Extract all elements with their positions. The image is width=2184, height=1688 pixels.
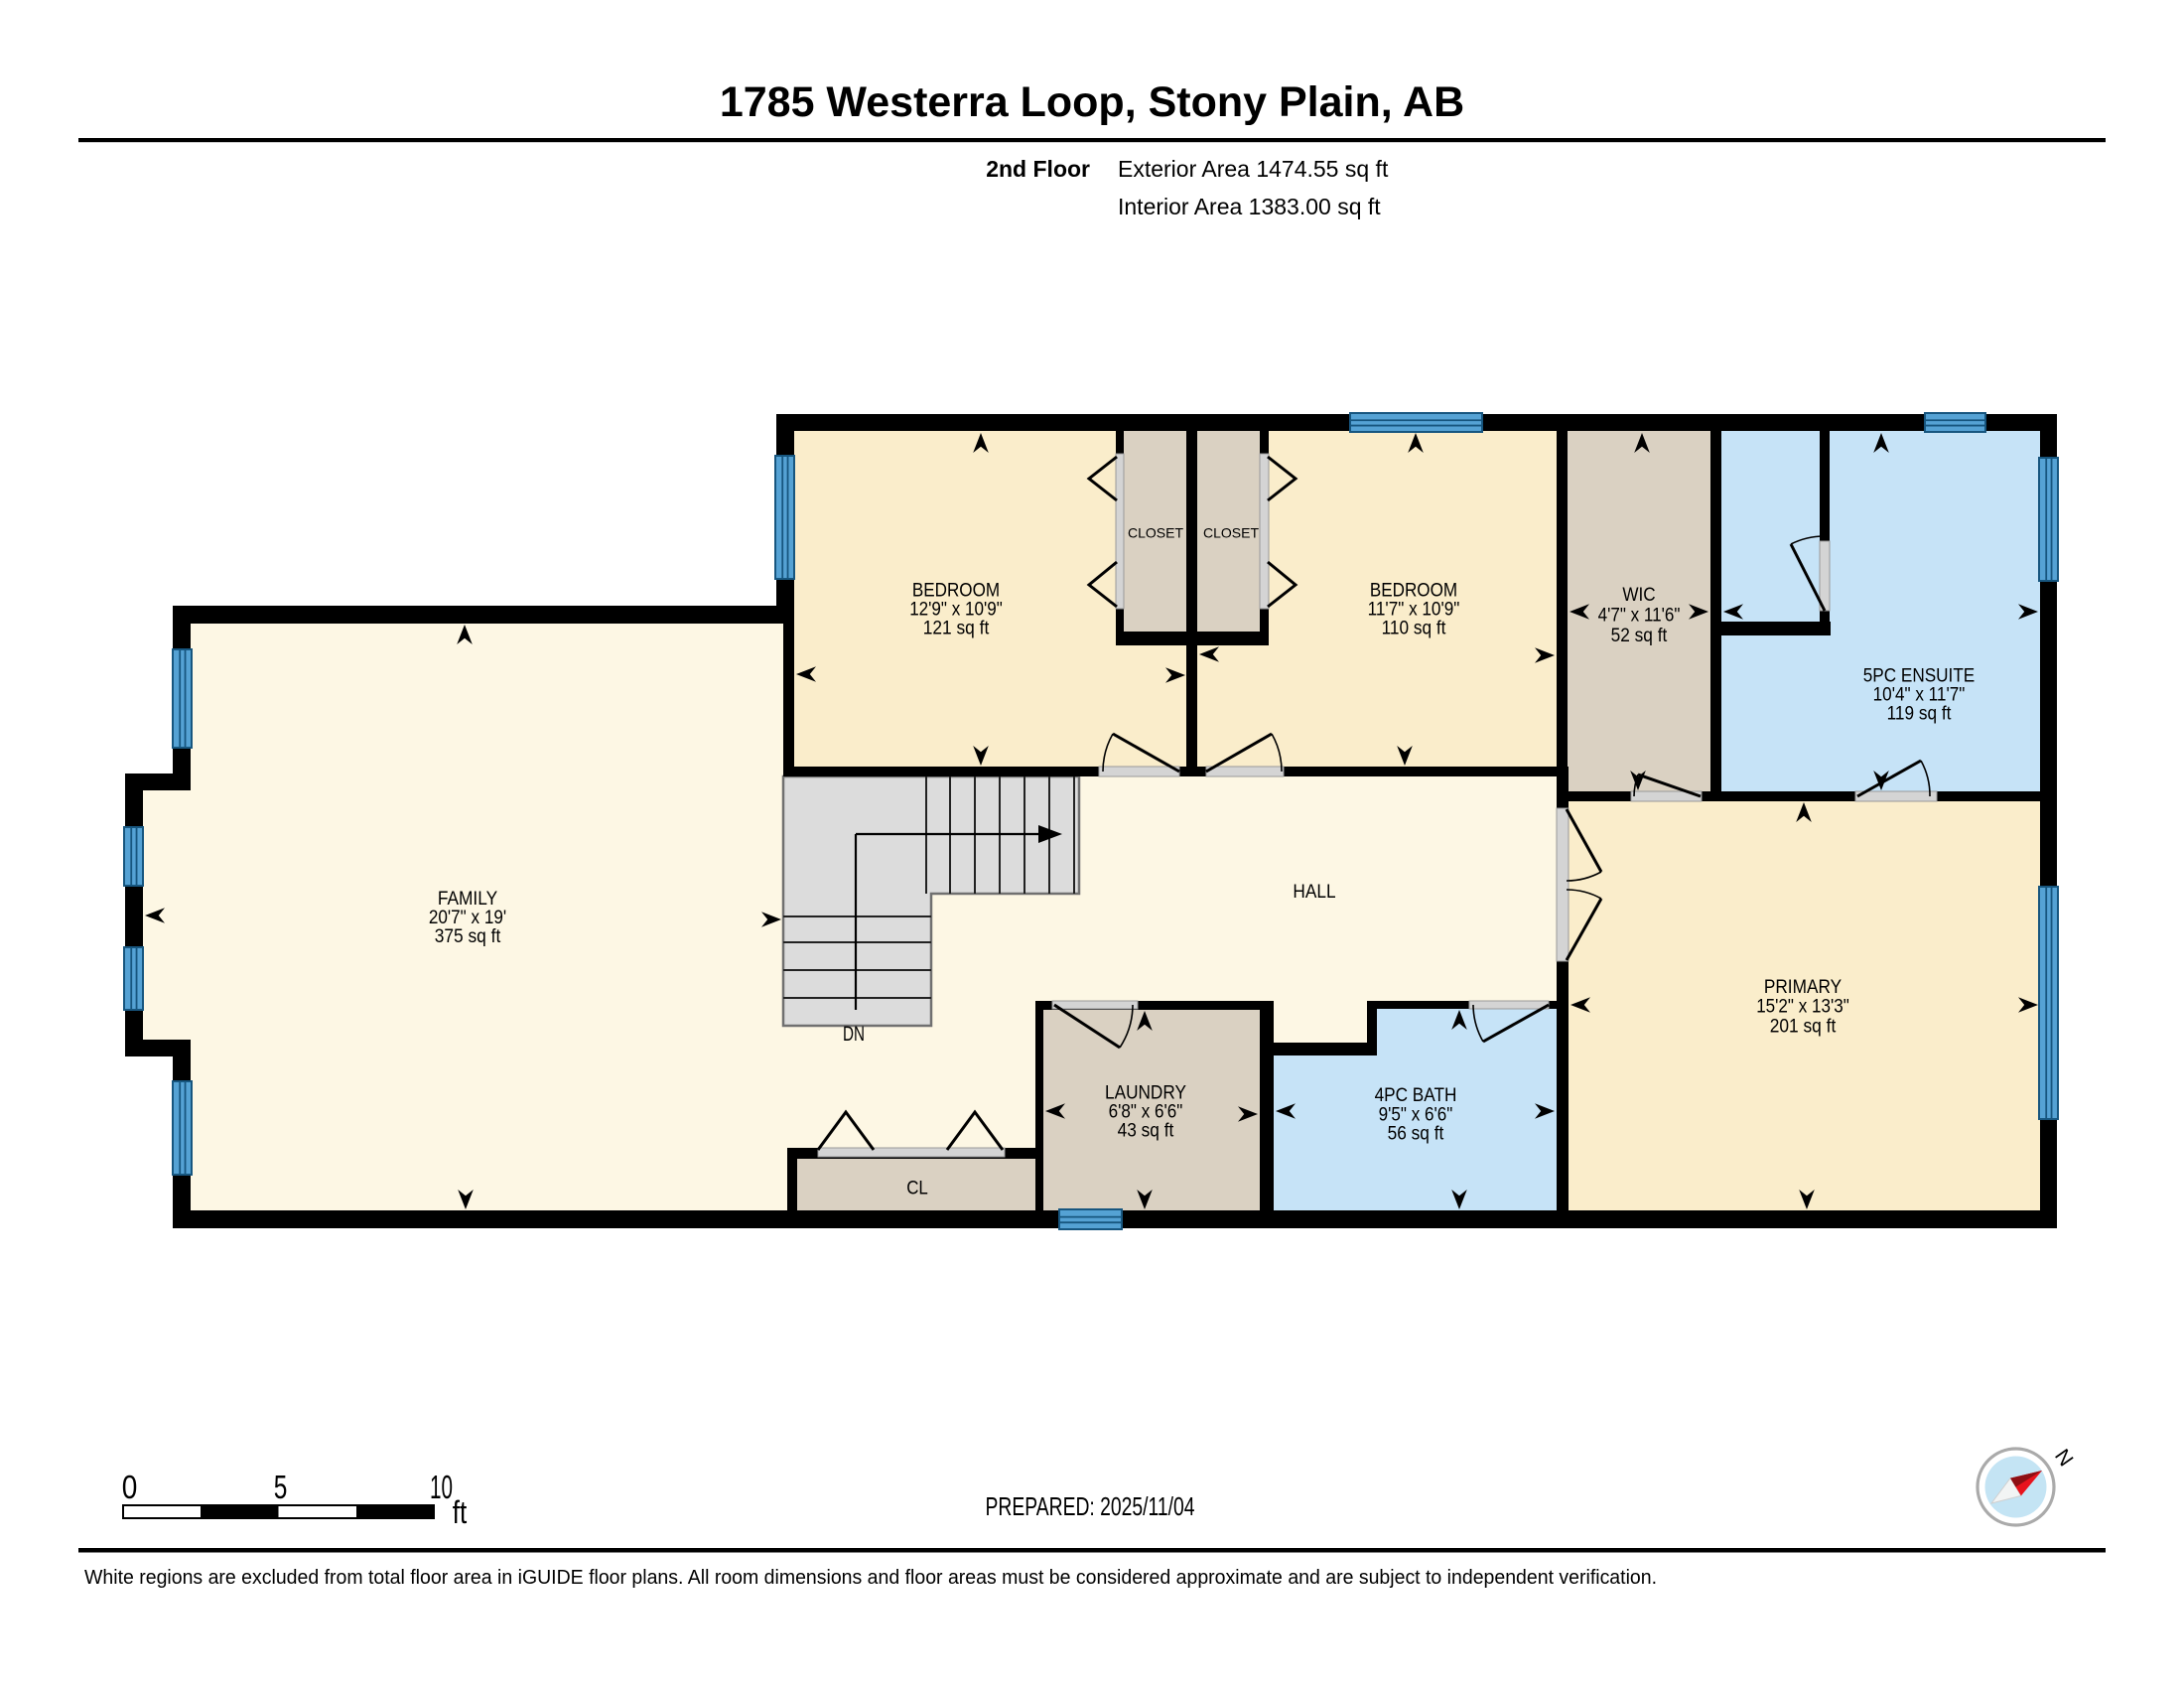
svg-text:5PC ENSUITE: 5PC ENSUITE <box>1863 666 1976 687</box>
svg-text:CL: CL <box>906 1179 928 1199</box>
svg-text:CLOSET: CLOSET <box>1203 525 1259 541</box>
svg-text:4PC BATH: 4PC BATH <box>1375 1085 1457 1106</box>
svg-text:11'7" x 10'9": 11'7" x 10'9" <box>1368 600 1460 621</box>
svg-text:DN: DN <box>843 1023 865 1046</box>
svg-text:10: 10 <box>430 1469 453 1505</box>
svg-text:White regions are excluded fro: White regions are excluded from total fl… <box>84 1567 1657 1589</box>
svg-text:6'8" x 6'6": 6'8" x 6'6" <box>1109 1102 1183 1123</box>
svg-text:1785 Westerra Loop, Stony Plai: 1785 Westerra Loop, Stony Plain, AB <box>720 78 1464 126</box>
svg-text:110 sq ft: 110 sq ft <box>1382 619 1446 639</box>
svg-text:10'4" x 11'7": 10'4" x 11'7" <box>1873 685 1966 706</box>
svg-text:PREPARED: 2025/11/04: PREPARED: 2025/11/04 <box>986 1491 1195 1521</box>
svg-text:0: 0 <box>122 1469 138 1505</box>
svg-text:FAMILY: FAMILY <box>438 889 498 910</box>
svg-text:BEDROOM: BEDROOM <box>912 581 1000 602</box>
svg-text:12'9" x 10'9": 12'9" x 10'9" <box>909 600 1003 621</box>
svg-text:WIC: WIC <box>1622 585 1655 606</box>
svg-text:LAUNDRY: LAUNDRY <box>1105 1083 1186 1104</box>
svg-text:56 sq ft: 56 sq ft <box>1388 1124 1444 1145</box>
svg-text:PRIMARY: PRIMARY <box>1764 977 1843 998</box>
svg-text:52 sq ft: 52 sq ft <box>1611 626 1668 646</box>
svg-text:43 sq ft: 43 sq ft <box>1118 1121 1174 1142</box>
svg-text:15'2" x 13'3": 15'2" x 13'3" <box>1756 997 1849 1018</box>
svg-text:119 sq ft: 119 sq ft <box>1887 704 1952 725</box>
svg-text:CLOSET: CLOSET <box>1128 525 1183 541</box>
svg-text:Interior Area 1383.00 sq ft: Interior Area 1383.00 sq ft <box>1118 194 1381 219</box>
svg-text:2nd Floor: 2nd Floor <box>986 156 1090 182</box>
svg-text:20'7" x 19': 20'7" x 19' <box>429 908 506 928</box>
svg-text:121 sq ft: 121 sq ft <box>923 619 990 639</box>
svg-text:5: 5 <box>274 1469 288 1505</box>
svg-text:HALL: HALL <box>1293 882 1335 903</box>
svg-text:BEDROOM: BEDROOM <box>1370 581 1457 602</box>
svg-text:4'7" x 11'6": 4'7" x 11'6" <box>1598 606 1681 627</box>
svg-text:9'5" x 6'6": 9'5" x 6'6" <box>1379 1104 1453 1125</box>
svg-text:Exterior Area 1474.55 sq ft: Exterior Area 1474.55 sq ft <box>1118 156 1389 182</box>
svg-text:375 sq ft: 375 sq ft <box>435 926 501 947</box>
svg-text:ft: ft <box>453 1494 468 1530</box>
svg-text:201 sq ft: 201 sq ft <box>1770 1016 1837 1037</box>
